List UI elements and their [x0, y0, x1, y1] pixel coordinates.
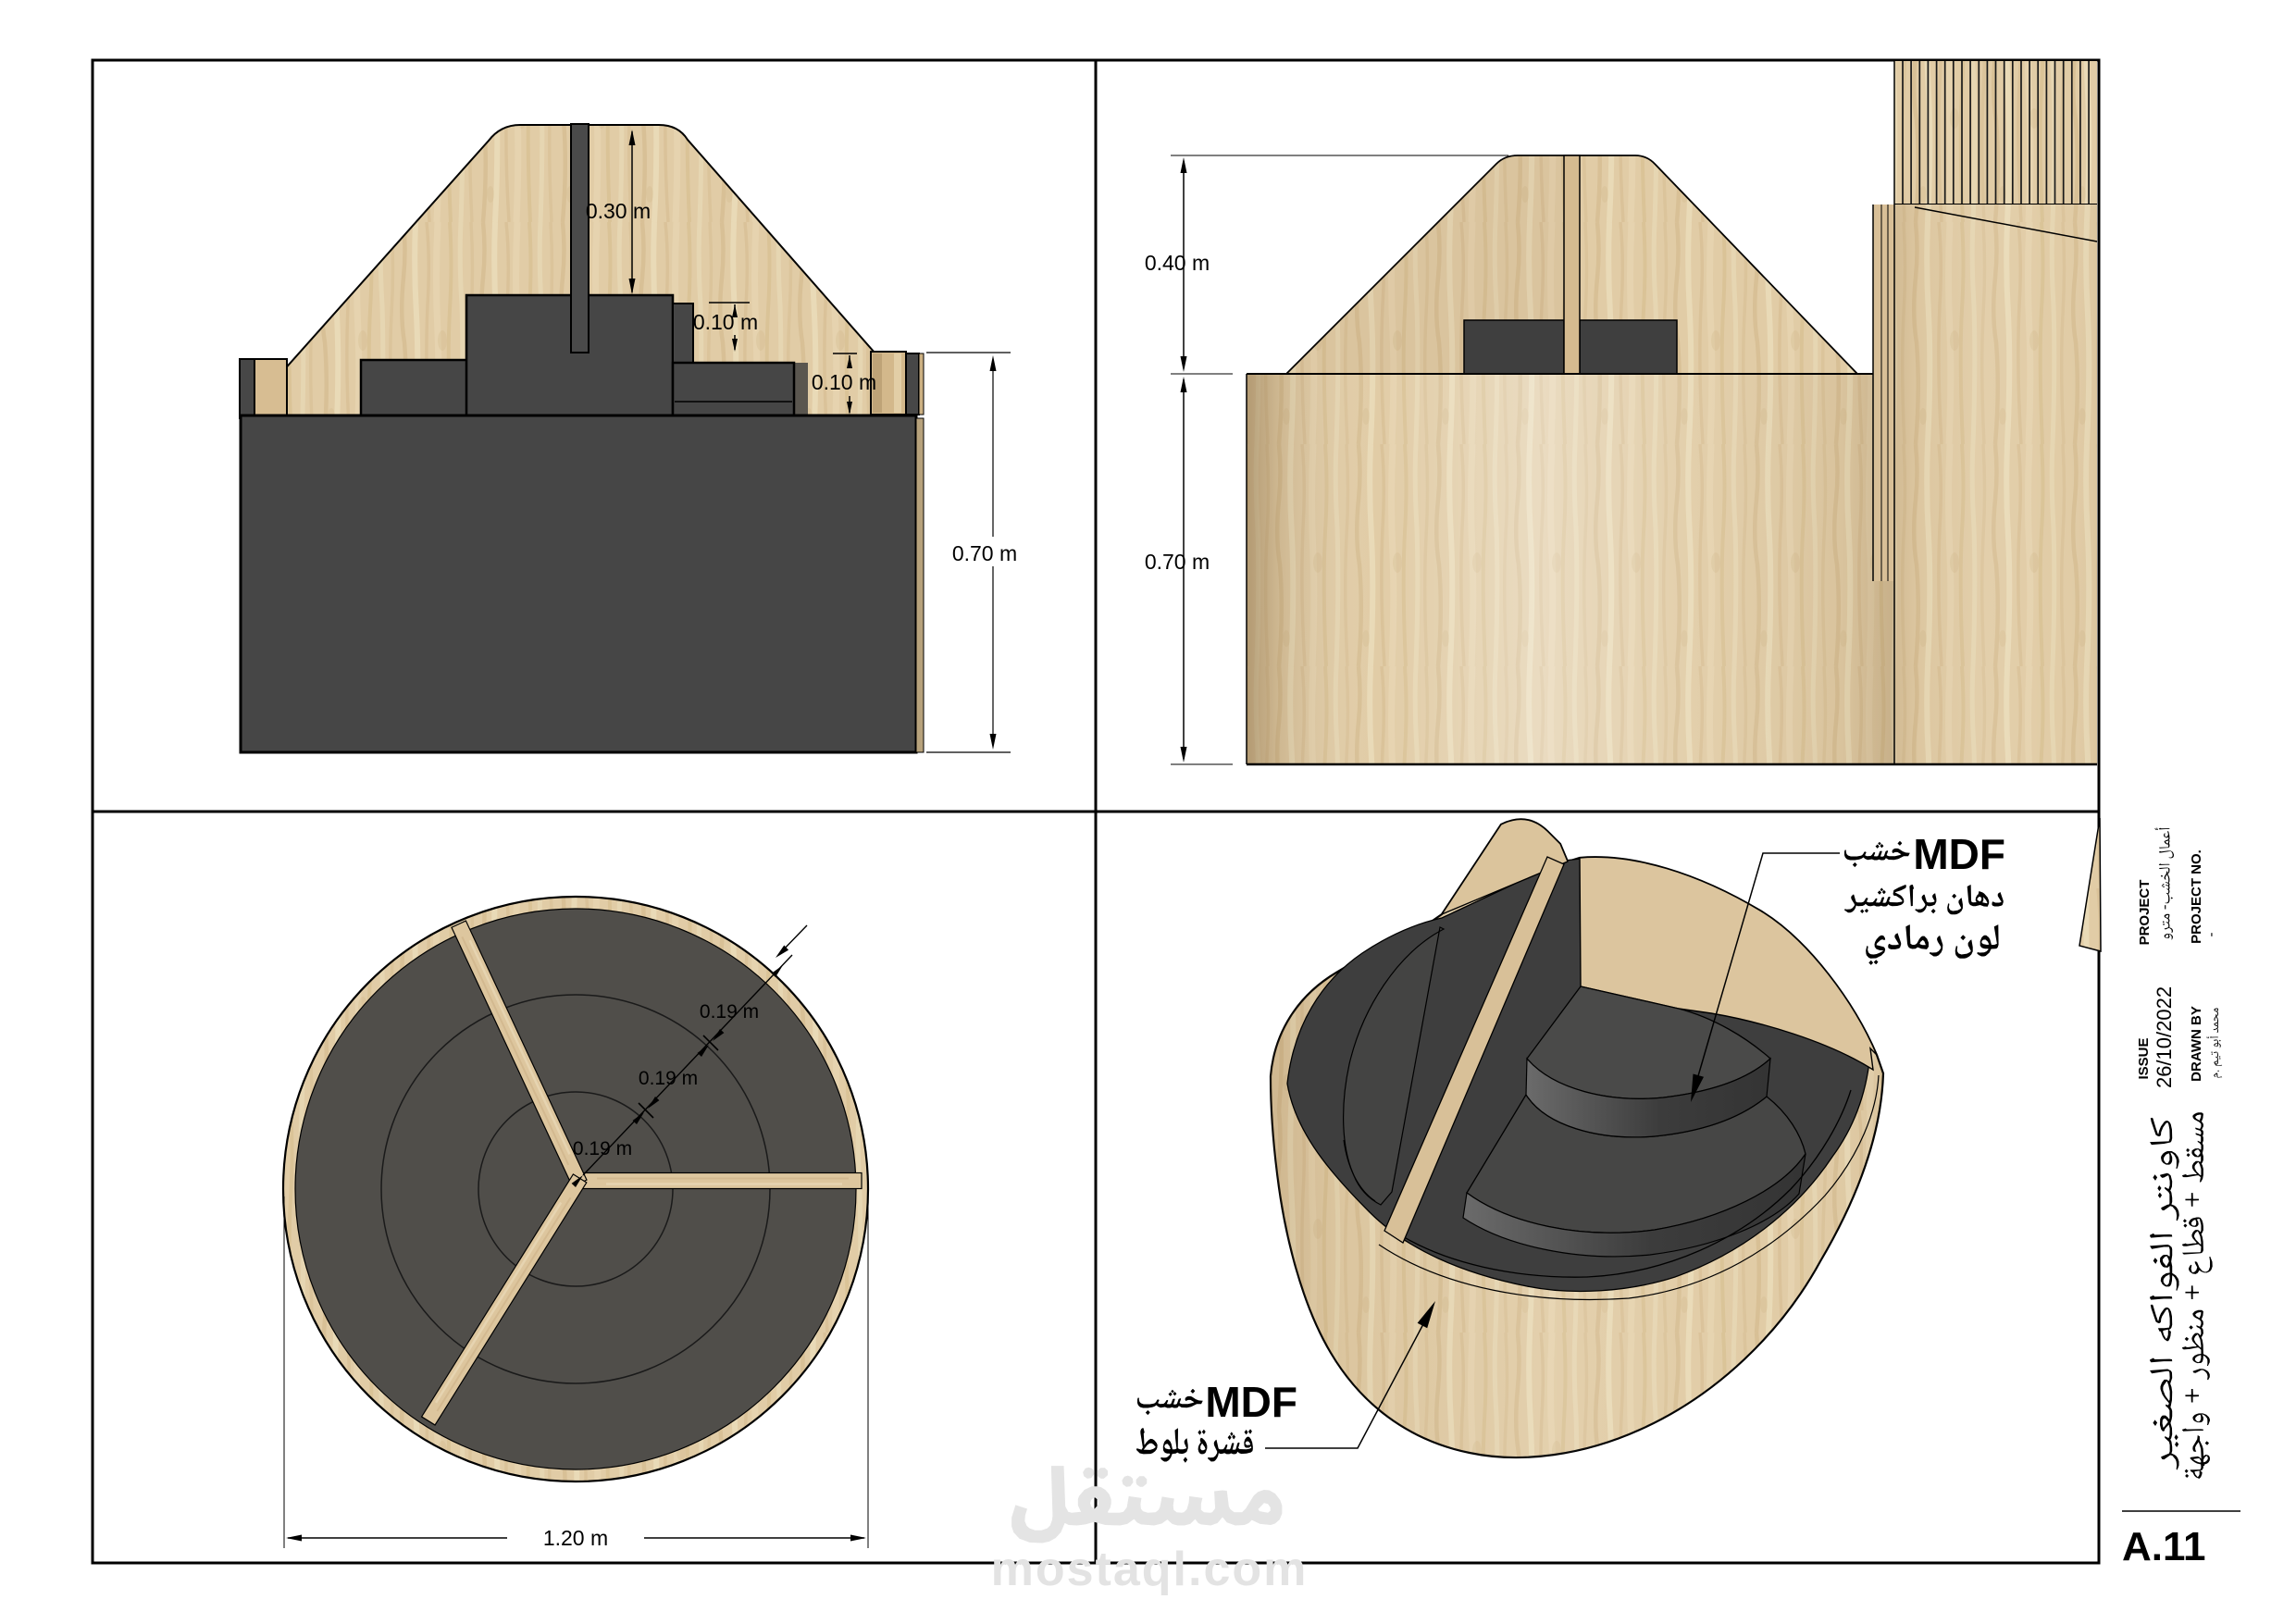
svg-text:0.70 m: 0.70 m [952, 541, 1017, 565]
svg-text:0.19 m: 0.19 m [700, 1001, 759, 1023]
svg-text:DRAWN BY: DRAWN BY [2189, 1006, 2204, 1082]
svg-text:ISSUE: ISSUE [2136, 1037, 2152, 1079]
svg-text:0.19 m: 0.19 m [573, 1138, 632, 1159]
svg-text:26/10/2022: 26/10/2022 [2153, 986, 2176, 1088]
svg-text:PROJECT: PROJECT [2137, 880, 2153, 946]
svg-text:0.19 m: 0.19 m [639, 1068, 698, 1089]
svg-text:mostaql.com: mostaql.com [991, 1543, 1309, 1596]
svg-text:A.11: A.11 [2122, 1524, 2206, 1569]
svg-text:0.40 m: 0.40 m [1145, 251, 1210, 275]
svg-text:0.70 m: 0.70 m [1145, 550, 1210, 574]
svg-text:0.30 m: 0.30 m [586, 199, 651, 223]
svg-text:MDF: MDF [1913, 830, 2005, 878]
svg-text:MDF: MDF [1205, 1378, 1297, 1426]
svg-text:PROJECT NO.: PROJECT NO. [2189, 849, 2204, 944]
svg-text:0.10 m: 0.10 m [693, 310, 758, 334]
svg-text:1.20 m: 1.20 m [543, 1526, 608, 1550]
svg-text:0.10 m: 0.10 m [812, 370, 876, 394]
svg-text:-: - [2203, 933, 2219, 937]
